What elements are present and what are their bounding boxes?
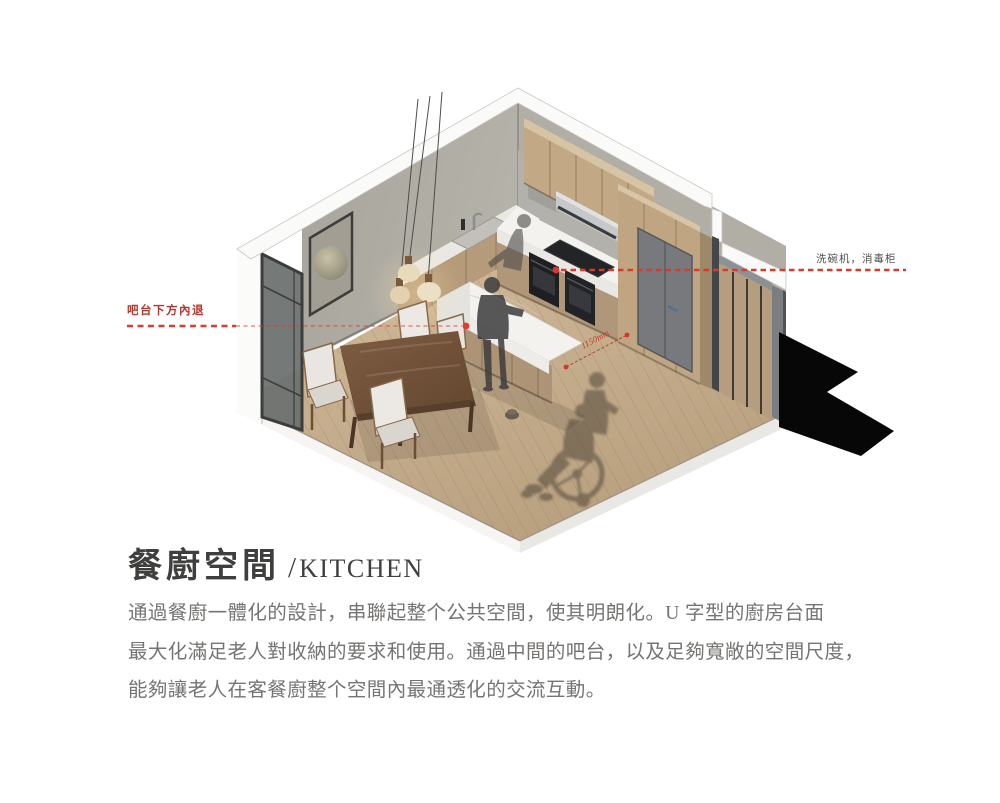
- description-line: 通過餐廚一體化的設計，串聯起整个公共空間，使其明朗化。U 字型的廚房台面: [128, 595, 898, 634]
- presentation-page: 吧台下方內退 洗碗机，消毒柜 1150mm 餐廚空間 / KITCHEN 通過餐…: [0, 0, 1000, 803]
- description-paragraph: 通過餐廚一體化的設計，串聯起整个公共空間，使其明朗化。U 字型的廚房台面 最大化…: [128, 595, 898, 711]
- description-line: 能夠讓老人在客餐廚整个空間內最通透化的交流互動。: [128, 672, 898, 711]
- section-title: 餐廚空間 / KITCHEN: [128, 538, 424, 587]
- annotation-dot: [553, 267, 560, 274]
- description-line: 最大化滿足老人對收納的要求和使用。通過中間的吧台，以及足夠寬敞的空間尺度，: [128, 634, 898, 673]
- entry-door: [262, 254, 302, 430]
- section-title-divider: /: [288, 552, 296, 585]
- entry-wall-end: [237, 236, 262, 424]
- annotation-dot: [463, 323, 470, 330]
- black-accent-shape: [779, 332, 894, 456]
- section-title-zh: 餐廚空間: [128, 538, 280, 587]
- section-title-en: KITCHEN: [299, 554, 424, 584]
- annotation-bar-recess-label: 吧台下方內退: [127, 303, 205, 317]
- annotation-appliances-label: 洗碗机，消毒柜: [816, 252, 897, 265]
